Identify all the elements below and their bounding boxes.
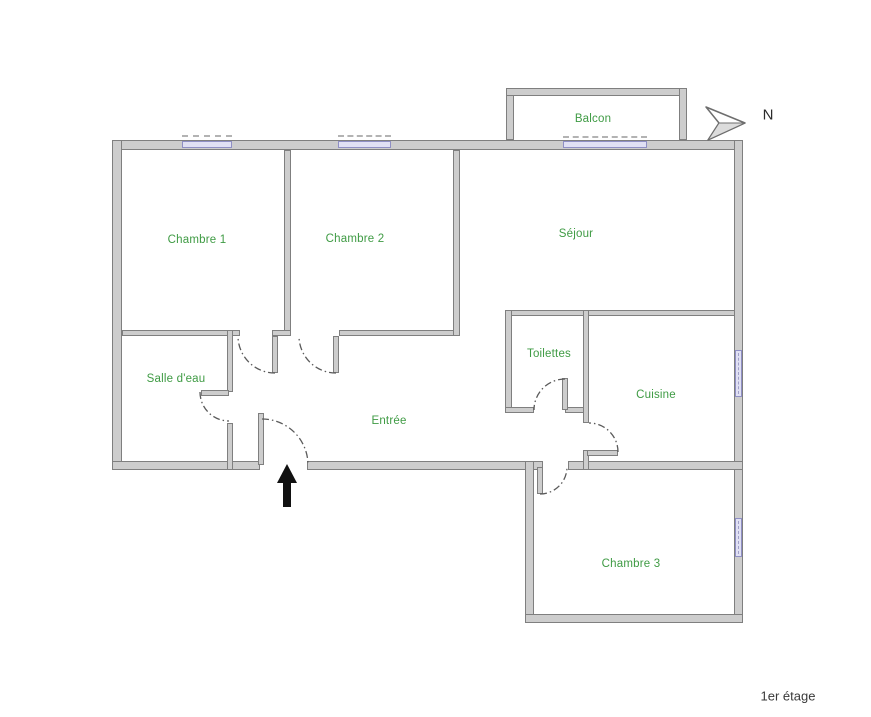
door-swing-arc (238, 336, 275, 373)
floor-plan: Chambre 1 Chambre 2 Séjour Balcon Salle … (0, 0, 871, 717)
entrance-arrow-icon (277, 464, 297, 507)
room-label-toilettes: Toilettes (527, 348, 571, 360)
door-swing-arc (589, 423, 618, 452)
plan-annotations (0, 0, 871, 717)
room-label-chambre3: Chambre 3 (602, 558, 661, 570)
room-label-entree: Entrée (371, 415, 406, 427)
floor-caption: 1er étage (761, 689, 816, 704)
door-swing-arc (299, 336, 336, 373)
room-label-chambre2: Chambre 2 (326, 233, 385, 245)
door-swing-arc (200, 392, 229, 421)
room-label-balcon: Balcon (575, 113, 611, 125)
room-label-chambre1: Chambre 1 (168, 234, 227, 246)
north-arrow-icon (706, 107, 745, 140)
compass-north-label: N (763, 107, 774, 124)
room-label-cuisine: Cuisine (636, 389, 676, 401)
door-swing-arc (540, 467, 567, 494)
door-swing-arc (262, 419, 308, 465)
room-label-sejour: Séjour (559, 228, 593, 240)
door-swing-arc (534, 379, 565, 410)
room-label-salledeau: Salle d'eau (147, 373, 206, 385)
